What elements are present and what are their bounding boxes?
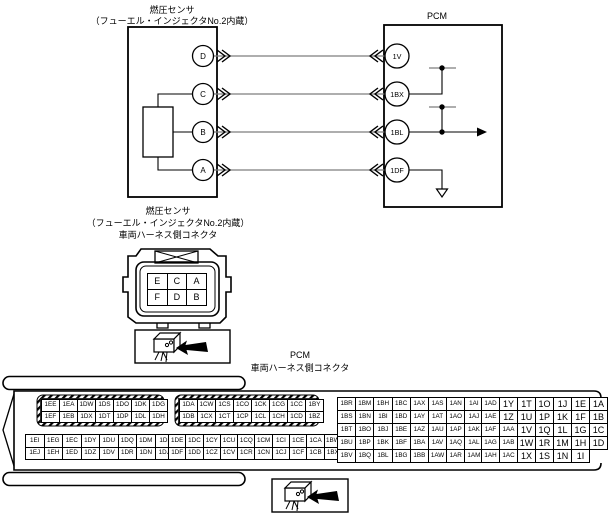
pin-cell: 1BB — [410, 450, 428, 463]
pin-cell: 1DY — [81, 435, 100, 448]
pin-cell: C — [167, 274, 187, 290]
pin-cell: 1BT — [338, 424, 356, 437]
pin-cell: 1D — [590, 437, 608, 450]
pin-cell: 1CB — [307, 447, 324, 460]
pin-cell: 1AC — [500, 450, 518, 463]
pin-cell: 1BO — [356, 424, 374, 437]
pin-cell: 1CZ — [203, 447, 220, 460]
pin-cell: 1AD — [482, 398, 500, 411]
pin-cell: 1CU — [220, 435, 237, 448]
pin-label: 1DF — [390, 166, 404, 175]
pin-cell: 1E — [572, 398, 590, 411]
pcm-pin-1V: 1V — [385, 44, 409, 68]
pin-cell: 1AB — [500, 437, 518, 450]
pin-cell: 1BP — [356, 437, 374, 450]
pin-cell: 1AQ — [447, 437, 465, 450]
pin-cell: 1DW — [78, 400, 96, 412]
pin-cell: F — [148, 290, 168, 306]
pin-cell: 1DR — [118, 447, 137, 460]
pin-cell: 1EG — [44, 435, 63, 448]
pin-cell: 1AG — [482, 437, 500, 450]
pin-cell: 1AA — [500, 424, 518, 437]
connector-view-callout — [272, 479, 348, 512]
pin-cell: 1CN — [255, 447, 272, 460]
pin-cell: 1BL — [374, 450, 392, 463]
pin-cell: 1AH — [482, 450, 500, 463]
pcm-pin-1BL: 1BL — [385, 120, 409, 144]
pin-cell: 1CR — [238, 447, 255, 460]
pin-cell: 1BY — [306, 400, 324, 412]
pin-cell: 1DE — [169, 435, 186, 448]
pin-cell: 1N — [554, 450, 572, 463]
pin-cell: 1BM — [356, 398, 374, 411]
pin-cell: 1BK — [374, 437, 392, 450]
sensor-pin-B: B — [193, 122, 214, 143]
sensor-title-line1: 燃圧センサ — [149, 4, 194, 15]
sensor-pin-D: D — [193, 46, 214, 67]
pin-label: A — [200, 166, 206, 175]
pin-cell: 1CO — [234, 400, 252, 412]
pcm-pin-1BX: 1BX — [385, 82, 409, 106]
sensor-pin-C: C — [193, 84, 214, 105]
pin-cell: 1CV — [220, 447, 237, 460]
pin-cell: 1DN — [137, 447, 156, 460]
pin-cell: 1L — [554, 424, 572, 437]
pin-cell: 1DQ — [118, 435, 137, 448]
pin-cell: 1EI — [26, 435, 45, 448]
pin-cell: 1BH — [374, 398, 392, 411]
pin-label: C — [200, 90, 206, 99]
pin-cell: 1J — [554, 398, 572, 411]
pcm-pin-table-bottom-mid: 1DE1DC1CY1CU1CQ1CM1CI1CE1CA1BW1DF1DD1CZ1… — [168, 434, 342, 460]
pin-cell: 1DF — [169, 447, 186, 460]
pcm-title: PCM — [427, 11, 447, 21]
wiring-diagram-page: 燃圧センサ （フューエル・インジェクタNo.2内蔵） PCM — [0, 0, 609, 517]
sensor-connector-label1: 燃圧センサ — [145, 205, 190, 216]
pin-cell: 1EJ — [26, 447, 45, 460]
pin-cell: 1BC — [392, 398, 410, 411]
pin-cell: 1DT — [96, 411, 114, 423]
pin-cell: 1CY — [203, 435, 220, 448]
pin-cell: 1DX — [78, 411, 96, 423]
pin-cell: 1BZ — [306, 411, 324, 423]
pin-cell: 1M — [554, 437, 572, 450]
pin-cell: 1CS — [216, 400, 234, 412]
sensor-harness-connector-drawing: 燃圧センサ （フューエル・インジェクタNo.2内蔵） 車両ハーネス側コネクタ — [87, 205, 250, 328]
pcm-pin-table-top-left: 1EE1EA1DW1DS1DO1DK1DG1EF1EB1DX1DT1DP1DL1… — [41, 399, 168, 423]
pin-cell: 1AZ — [410, 424, 428, 437]
pin-cell: 1EF — [42, 411, 60, 423]
pin-cell: 1CM — [255, 435, 272, 448]
pin-cell: 1AS — [428, 398, 446, 411]
pin-cell: 1CL — [252, 411, 270, 423]
pin-cell: 1EH — [44, 447, 63, 460]
pin-cell: 1Y — [500, 398, 518, 411]
pin-cell: 1BD — [392, 411, 410, 424]
pin-cell: 1AN — [447, 398, 465, 411]
sensor-pin-A: A — [193, 160, 214, 181]
pin-cell: 1DB — [180, 411, 198, 423]
pin-cell: 1AX — [410, 398, 428, 411]
pin-cell: 1DK — [132, 400, 150, 412]
inline-connector-chevrons — [217, 50, 383, 176]
pin-cell: 1CH — [270, 411, 288, 423]
pin-cell: 1BV — [338, 450, 356, 463]
pin-cell: 1BA — [410, 437, 428, 450]
pin-cell: 1AP — [447, 424, 465, 437]
pin-label: D — [200, 52, 206, 61]
pin-cell: 1CD — [288, 411, 306, 423]
pin-cell: 1I — [572, 450, 590, 463]
pcm-connector-label2: 車両ハーネス側コネクタ — [251, 362, 350, 373]
pin-cell: 1DD — [186, 447, 203, 460]
pin-cell: 1DA — [180, 400, 198, 412]
connector-bottom-rail — [3, 473, 245, 486]
sensor-title-line2: （フューエル・インジェクタNo.2内蔵） — [91, 15, 254, 26]
pin-cell: 1BQ — [356, 450, 374, 463]
pin-cell: 1DU — [100, 435, 119, 448]
pin-cell: 1CK — [252, 400, 270, 412]
pin-cell: 1CP — [234, 411, 252, 423]
pin-cell: 1BE — [392, 424, 410, 437]
empty-cell — [590, 450, 608, 463]
pin-cell: 1DC — [186, 435, 203, 448]
pin-cell: 1BJ — [374, 424, 392, 437]
pin-cell: 1BU — [338, 437, 356, 450]
pin-cell: 1BI — [374, 411, 392, 424]
pin-cell: 1DO — [114, 400, 132, 412]
pin-cell: 1DV — [100, 447, 119, 460]
pin-cell: 1H — [572, 437, 590, 450]
pin-cell: B — [187, 290, 207, 306]
pin-cell: 1DG — [150, 400, 168, 412]
pin-cell: 1AV — [428, 437, 446, 450]
pin-cell: 1DP — [114, 411, 132, 423]
pin-cell: 1AE — [482, 411, 500, 424]
pin-cell: 1T — [518, 398, 536, 411]
pin-label: B — [200, 128, 205, 137]
pin-cell: 1S — [536, 450, 554, 463]
pcm-pin-table-right-a: 1BR1BM1BH1BC1AX1AS1AN1AI1BS1BN1BI1BD1AY1… — [337, 397, 484, 463]
pin-cell: 1R — [536, 437, 554, 450]
pin-cell: 1G — [572, 424, 590, 437]
pin-cell: 1W — [518, 437, 536, 450]
pin-label: 1BL — [391, 128, 404, 137]
pin-cell: 1CW — [198, 400, 216, 412]
connector-top-rail — [3, 377, 245, 390]
junction-dot — [439, 104, 444, 109]
pin-cell: 1Q — [536, 424, 554, 437]
pin-cell: 1DZ — [81, 447, 100, 460]
sensor-connector-label2: （フューエル・インジェクタNo.2内蔵） — [87, 217, 250, 228]
pin-cell: A — [187, 274, 207, 290]
pin-cell: 1O — [536, 398, 554, 411]
pin-cell: 1C — [590, 424, 608, 437]
pin-cell: 1BF — [392, 437, 410, 450]
pin-cell: 1AY — [410, 411, 428, 424]
pcm-pin-1DF: 1DF — [385, 158, 409, 182]
pin-cell: E — [148, 274, 168, 290]
pcm-pin-table-bottom-left: 1EI1EG1EC1DY1DU1DQ1DM1DI1EJ1EH1ED1DZ1DV1… — [25, 434, 174, 460]
pin-cell: 1CF — [290, 447, 307, 460]
pin-cell: 1AR — [447, 450, 465, 463]
pin-cell: 1CI — [272, 435, 289, 448]
junction-dot — [439, 65, 444, 70]
pin-cell: 1DM — [137, 435, 156, 448]
pin-cell: 1CG — [270, 400, 288, 412]
pin-cell: 1K — [554, 411, 572, 424]
pin-cell: 1AU — [428, 424, 446, 437]
pin-cell: 1X — [518, 450, 536, 463]
pin-cell: 1CQ — [238, 435, 255, 448]
wire-lines — [212, 56, 386, 170]
pin-cell: 1BS — [338, 411, 356, 424]
pin-cell: 1EE — [42, 400, 60, 412]
pcm-pin-table-right-b: 1AD1Y1T1O1J1E1A1AE1Z1U1P1K1F1B1AF1AA1V1Q… — [481, 397, 608, 463]
pin-cell: 1EB — [60, 411, 78, 423]
pin-cell: 1U — [518, 411, 536, 424]
connector-view-callout — [135, 330, 230, 363]
pin-cell: 1F — [572, 411, 590, 424]
pin-cell: 1CT — [216, 411, 234, 423]
pin-cell: 1BN — [356, 411, 374, 424]
pin-cell: 1ED — [63, 447, 82, 460]
pin-cell: 1DH — [150, 411, 168, 423]
pin-cell: 1AF — [482, 424, 500, 437]
pin-cell: 1BG — [392, 450, 410, 463]
pin-cell: 1EA — [60, 400, 78, 412]
pin-label: 1V — [393, 52, 402, 61]
sensor-connector-pin-grid: ECAFDB — [147, 273, 207, 306]
pin-cell: 1CJ — [272, 447, 289, 460]
pin-cell: 1BR — [338, 398, 356, 411]
pin-cell: 1CE — [290, 435, 307, 448]
pin-cell: 1B — [590, 411, 608, 424]
pin-label: 1BX — [390, 90, 404, 99]
pin-cell: 1CX — [198, 411, 216, 423]
pin-cell: 1CC — [288, 400, 306, 412]
pin-cell: 1AT — [428, 411, 446, 424]
sensor-connector-label3: 車両ハーネス側コネクタ — [119, 229, 218, 240]
circuit-diagram: 燃圧センサ （フューエル・インジェクタNo.2内蔵） PCM — [91, 4, 502, 207]
pcm-pin-table-top-mid: 1DA1CW1CS1CO1CK1CG1CC1BY1DB1CX1CT1CP1CL1… — [179, 399, 324, 423]
pin-cell: 1V — [518, 424, 536, 437]
pin-cell: 1EC — [63, 435, 82, 448]
pin-cell: 1A — [590, 398, 608, 411]
pin-cell: 1AO — [447, 411, 465, 424]
pin-cell: 1AW — [428, 450, 446, 463]
pcm-connector-label1: PCM — [290, 350, 310, 360]
pin-cell: 1P — [536, 411, 554, 424]
pin-cell: 1DL — [132, 411, 150, 423]
connector-left-wing — [3, 394, 14, 466]
pin-cell: D — [167, 290, 187, 306]
junction-dot — [439, 129, 444, 134]
pin-cell: 1CA — [307, 435, 324, 448]
pin-cell: 1Z — [500, 411, 518, 424]
pin-cell: 1DS — [96, 400, 114, 412]
